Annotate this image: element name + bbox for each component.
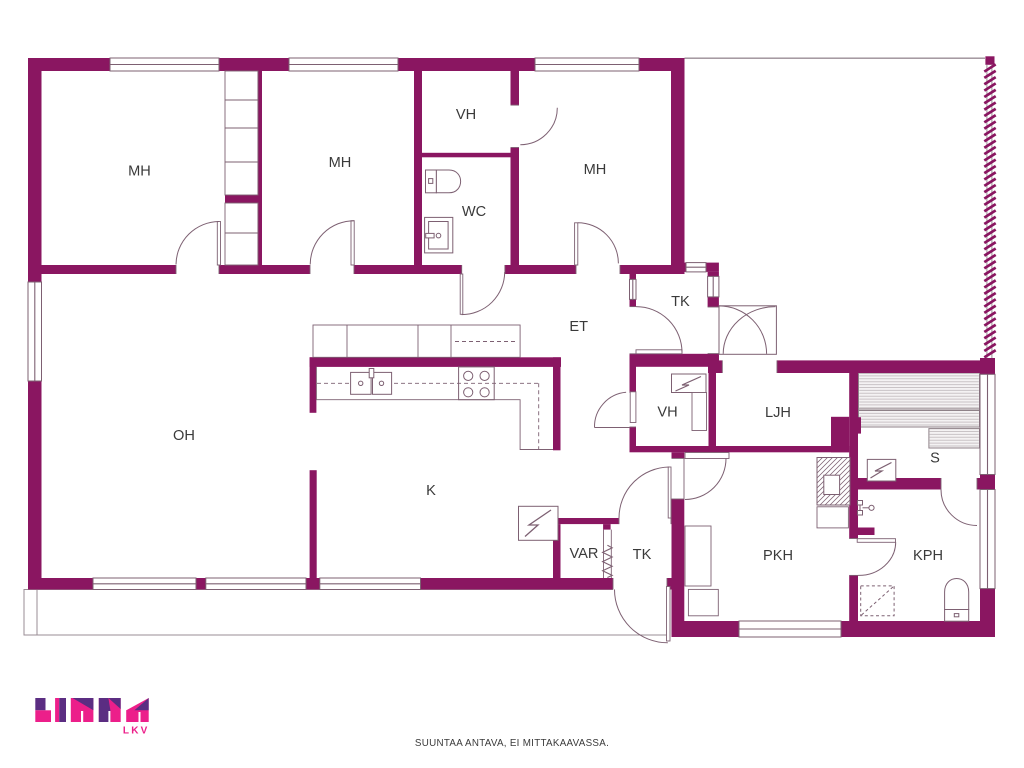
svg-text:MH: MH xyxy=(584,162,607,178)
svg-text:KPH: KPH xyxy=(913,548,943,564)
svg-text:K: K xyxy=(426,483,436,499)
svg-text:LJH: LJH xyxy=(765,405,791,421)
svg-text:MH: MH xyxy=(329,155,352,171)
svg-text:ET: ET xyxy=(569,319,588,335)
svg-text:TK: TK xyxy=(671,294,690,310)
svg-text:MH: MH xyxy=(128,164,151,180)
svg-text:TK: TK xyxy=(633,547,652,563)
svg-text:OH: OH xyxy=(173,428,195,444)
svg-text:VH: VH xyxy=(456,107,476,123)
svg-text:VH: VH xyxy=(657,405,677,421)
svg-text:VAR: VAR xyxy=(570,546,599,562)
svg-text:PKH: PKH xyxy=(763,548,793,564)
svg-text:WC: WC xyxy=(462,204,486,220)
svg-text:LKV: LKV xyxy=(123,726,150,737)
svg-text:S: S xyxy=(930,451,940,467)
svg-text:SUUNTAA ANTAVA, EI MITTAKAAVAS: SUUNTAA ANTAVA, EI MITTAKAAVASSA. xyxy=(415,738,609,749)
